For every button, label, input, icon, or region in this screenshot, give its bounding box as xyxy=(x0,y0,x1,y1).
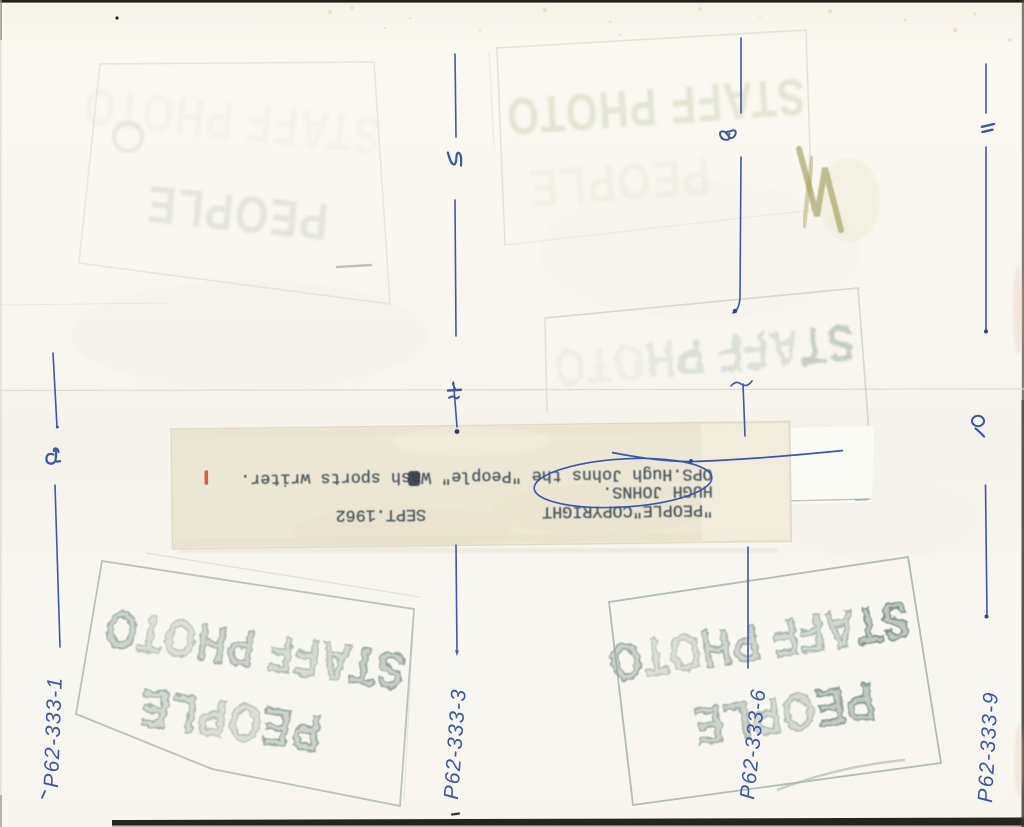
svg-text:"PEOPLE"COPYRIGHT: "PEOPLE"COPYRIGHT xyxy=(542,499,713,520)
svg-text:P62-333-1: P62-333-1 xyxy=(40,676,67,788)
svg-text:SEPT.1962: SEPT.1962 xyxy=(335,504,426,524)
